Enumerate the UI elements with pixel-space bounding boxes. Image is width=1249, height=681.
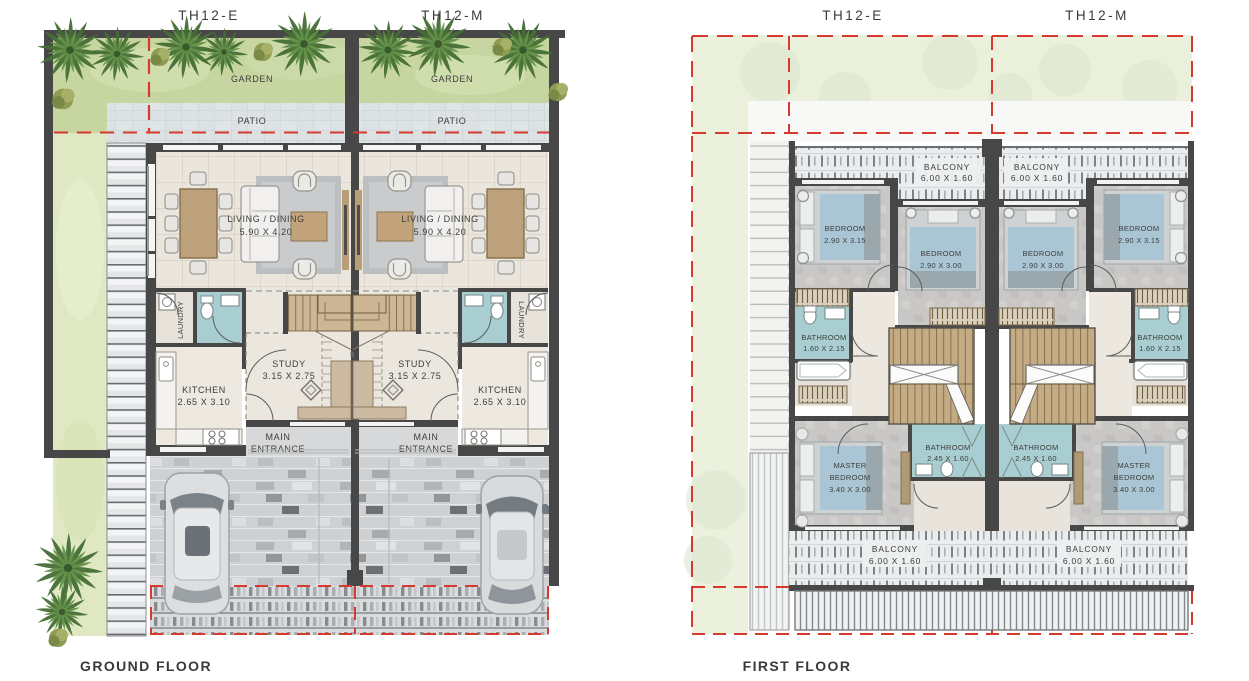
svg-text:2.90 X 3.15: 2.90 X 3.15	[824, 236, 866, 245]
svg-text:KITCHEN: KITCHEN	[182, 385, 226, 395]
svg-text:6.00 X 1.60: 6.00 X 1.60	[1063, 556, 1115, 566]
svg-text:2.90 X 3.00: 2.90 X 3.00	[920, 261, 962, 270]
svg-text:3.15 X 2.75: 3.15 X 2.75	[263, 371, 316, 381]
svg-text:LAUNDRY: LAUNDRY	[517, 301, 526, 339]
svg-text:2.90 X 3.15: 2.90 X 3.15	[1118, 236, 1160, 245]
svg-text:BEDROOM: BEDROOM	[825, 224, 866, 233]
svg-text:FIRST FLOOR: FIRST FLOOR	[743, 658, 852, 674]
svg-text:1.60 X 2.15: 1.60 X 2.15	[803, 344, 845, 353]
svg-text:6.00 X 1.60: 6.00 X 1.60	[1011, 173, 1063, 183]
svg-text:BALCONY: BALCONY	[872, 544, 918, 554]
svg-text:PATIO: PATIO	[438, 116, 467, 126]
svg-text:PATIO: PATIO	[238, 116, 267, 126]
svg-text:BALCONY: BALCONY	[1014, 162, 1060, 172]
svg-text:MASTER: MASTER	[1117, 461, 1150, 470]
svg-text:1.60 X 2.15: 1.60 X 2.15	[1139, 344, 1181, 353]
svg-text:GARDEN: GARDEN	[431, 74, 473, 84]
svg-text:BATHROOM: BATHROOM	[1137, 333, 1182, 342]
svg-text:MAIN: MAIN	[414, 432, 439, 442]
svg-text:2.65 X 3.10: 2.65 X 3.10	[178, 397, 231, 407]
svg-text:BALCONY: BALCONY	[924, 162, 970, 172]
svg-text:BATHROOM: BATHROOM	[925, 443, 970, 452]
svg-text:3.40 X 3.00: 3.40 X 3.00	[829, 485, 871, 494]
svg-text:3.15 X 2.75: 3.15 X 2.75	[389, 371, 442, 381]
svg-text:6.00 X 1.60: 6.00 X 1.60	[869, 556, 921, 566]
svg-text:MAIN: MAIN	[266, 432, 291, 442]
svg-text:LAUNDRY: LAUNDRY	[176, 301, 185, 339]
svg-text:LIVING / DINING: LIVING / DINING	[401, 214, 479, 224]
svg-text:TH12-M: TH12-M	[1065, 8, 1129, 23]
svg-text:STUDY: STUDY	[272, 359, 306, 369]
svg-text:3.40 X 3.00: 3.40 X 3.00	[1113, 485, 1155, 494]
svg-text:MASTER: MASTER	[833, 461, 866, 470]
svg-text:BEDROOM: BEDROOM	[921, 249, 962, 258]
svg-text:2.90 X 3.00: 2.90 X 3.00	[1022, 261, 1064, 270]
svg-text:LIVING / DINING: LIVING / DINING	[227, 214, 305, 224]
svg-text:BALCONY: BALCONY	[1066, 544, 1112, 554]
svg-text:BEDROOM: BEDROOM	[1119, 224, 1160, 233]
svg-text:TH12-E: TH12-E	[822, 8, 884, 23]
svg-text:2.65 X 3.10: 2.65 X 3.10	[474, 397, 527, 407]
svg-text:BATHROOM: BATHROOM	[1013, 443, 1058, 452]
svg-text:BEDROOM: BEDROOM	[830, 473, 871, 482]
svg-text:GARDEN: GARDEN	[231, 74, 273, 84]
svg-text:KITCHEN: KITCHEN	[478, 385, 522, 395]
svg-text:BEDROOM: BEDROOM	[1114, 473, 1155, 482]
svg-text:5.90 X 4.20: 5.90 X 4.20	[414, 227, 467, 237]
svg-text:STUDY: STUDY	[398, 359, 432, 369]
svg-text:BEDROOM: BEDROOM	[1023, 249, 1064, 258]
svg-text:TH12-M: TH12-M	[421, 8, 485, 23]
svg-text:5.90 X 4.20: 5.90 X 4.20	[240, 227, 293, 237]
svg-text:TH12-E: TH12-E	[178, 8, 240, 23]
svg-text:BATHROOM: BATHROOM	[801, 333, 846, 342]
svg-text:6.00 X 1.60: 6.00 X 1.60	[921, 173, 973, 183]
svg-text:GROUND FLOOR: GROUND FLOOR	[80, 658, 212, 674]
